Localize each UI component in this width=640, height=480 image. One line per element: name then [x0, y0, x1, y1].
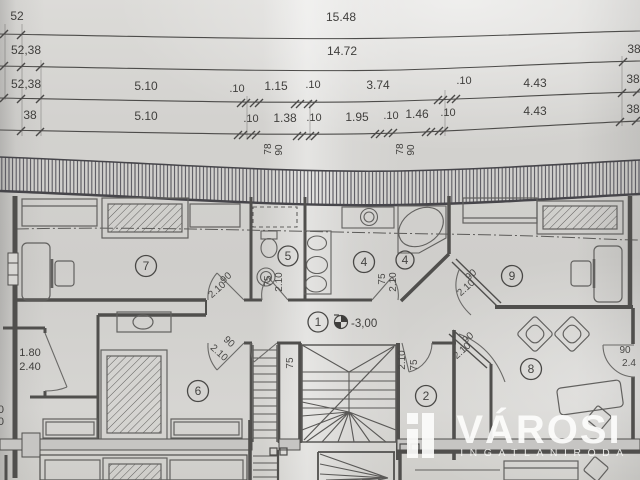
- door-width-label: 75: [409, 359, 420, 371]
- dim-label: 52: [10, 9, 24, 23]
- lower-floor-rooms: [45, 456, 609, 480]
- dim-label: .10: [440, 107, 455, 119]
- room-label-6: 6: [188, 381, 209, 402]
- door-width-label: 75: [377, 273, 388, 285]
- dim-label: .10: [229, 83, 244, 95]
- logo-brand-text: VÁROSI: [456, 407, 621, 452]
- room-label-1: 1: [308, 312, 328, 332]
- door-height-label: 40: [0, 416, 4, 428]
- room-label-2: 2: [416, 386, 437, 407]
- svg-text:8: 8: [528, 362, 535, 376]
- window-height-label: 78: [395, 143, 406, 155]
- door-width-label: 75: [263, 275, 274, 287]
- ladder-stair: [253, 345, 277, 477]
- dim-label: .10: [306, 112, 321, 124]
- dim-label: .10: [305, 79, 320, 91]
- dim-label: 15.48: [326, 10, 356, 24]
- room6-furniture: [43, 312, 242, 439]
- dim-label: 3.74: [366, 78, 390, 92]
- main-staircase: [302, 345, 396, 442]
- door-width-label: 90: [619, 345, 631, 356]
- door-height-label: 2.10: [388, 272, 399, 292]
- svg-text:2: 2: [423, 389, 430, 403]
- dim-label: 1.15: [264, 79, 288, 93]
- dim-label: 1.95: [345, 110, 369, 124]
- window-height-label: 90: [274, 144, 285, 156]
- door-width-label: 75: [285, 357, 296, 369]
- logo-mark-icon: [407, 429, 418, 458]
- room-label-7: 7: [136, 256, 157, 277]
- door-height-label: 2.4: [622, 358, 636, 369]
- room9-furniture: [463, 198, 623, 302]
- hatched-wall-band: [0, 157, 640, 205]
- dim-label: .10: [456, 75, 471, 87]
- svg-text:7: 7: [143, 259, 150, 273]
- room-label-4b: 4: [396, 251, 414, 269]
- dim-label: 1.38: [273, 111, 297, 125]
- dim-label: 52,38: [11, 77, 41, 91]
- dim-label: .10: [383, 110, 398, 122]
- room-label-5: 5: [278, 246, 298, 266]
- dim-label: .10: [243, 113, 258, 125]
- svg-text:9: 9: [509, 269, 516, 283]
- logo-mark-icon: [422, 413, 434, 458]
- dim-label: 38: [626, 72, 640, 86]
- room-label-8: 8: [521, 359, 542, 380]
- door-height-label: 2.10: [397, 350, 408, 370]
- logo-mark-icon: [407, 413, 418, 424]
- dim-label: 1.46: [405, 107, 429, 121]
- svg-text:1: 1: [315, 315, 322, 329]
- dim-label: 5.10: [134, 109, 158, 123]
- door-width-label: 90: [221, 334, 237, 350]
- floor-plan-drawing: 52 15.48 52,38 14.72 38 52,38 5.10 .10 1…: [0, 0, 640, 480]
- svg-text:4: 4: [402, 253, 409, 267]
- svg-text:4: 4: [361, 255, 368, 269]
- door-height-label: 2.40: [19, 361, 40, 373]
- dim-label: 14.72: [327, 44, 357, 58]
- dim-label: 5.10: [134, 79, 158, 93]
- window-height-label: 78: [263, 143, 274, 155]
- dim-label: 4.43: [523, 104, 547, 118]
- dim-label: 52,38: [11, 43, 41, 57]
- lower-staircase: [320, 454, 388, 480]
- door-height-label: 2.10: [274, 272, 285, 292]
- room-label-4a: 4: [354, 252, 375, 273]
- dimension-labels: 52 15.48 52,38 14.72 38 52,38 5.10 .10 1…: [10, 9, 640, 156]
- svg-text:6: 6: [195, 384, 202, 398]
- window-height-label: 90: [406, 144, 417, 156]
- door-height-label: 2.10: [455, 277, 477, 298]
- dim-label: 38: [626, 102, 640, 116]
- svg-text:5: 5: [285, 249, 292, 263]
- door-size-labels: 90 2.10 90 2.10 75 2.10 75 2.10 90 2.10 …: [0, 267, 636, 428]
- level-value: -3,00: [351, 318, 377, 330]
- room-label-9: 9: [502, 266, 523, 287]
- dim-label: 38: [23, 108, 37, 122]
- dim-label: 38: [627, 42, 640, 56]
- level-marker: -3,00: [334, 315, 377, 330]
- dim-label: 4.43: [523, 76, 547, 90]
- scanned-floor-plan: 52 15.48 52,38 14.72 38 52,38 5.10 .10 1…: [0, 0, 640, 480]
- door-width-label: 1.80: [19, 347, 40, 359]
- room7-furniture: [22, 198, 240, 300]
- logo-tagline-text: INGATLANIRODA: [460, 447, 629, 459]
- door-width-label: 90: [0, 404, 4, 416]
